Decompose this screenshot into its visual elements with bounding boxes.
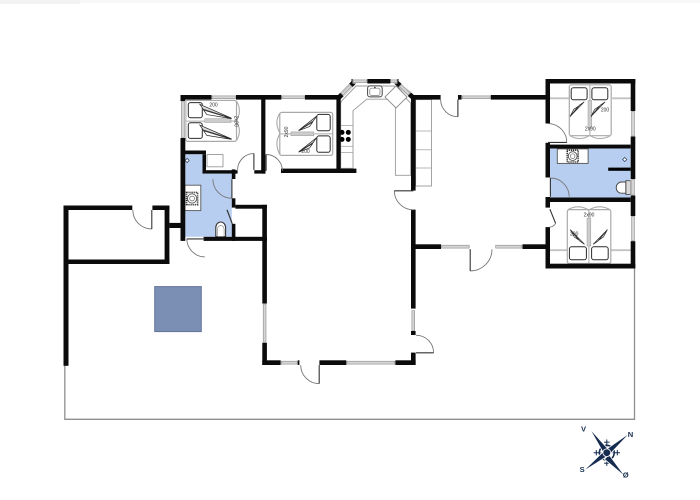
svg-text:2x90: 2x90 — [233, 116, 239, 127]
svg-text:200: 200 — [570, 232, 579, 238]
svg-text:200: 200 — [301, 149, 310, 155]
svg-text:Ø: Ø — [623, 470, 629, 479]
svg-text:S: S — [580, 465, 585, 474]
svg-text:2x90: 2x90 — [585, 126, 596, 132]
svg-text:200: 200 — [209, 102, 218, 108]
svg-text:2x90: 2x90 — [284, 126, 290, 137]
svg-text:N: N — [628, 430, 633, 439]
svg-text:200: 200 — [601, 108, 610, 114]
svg-text:2x90: 2x90 — [584, 213, 595, 219]
